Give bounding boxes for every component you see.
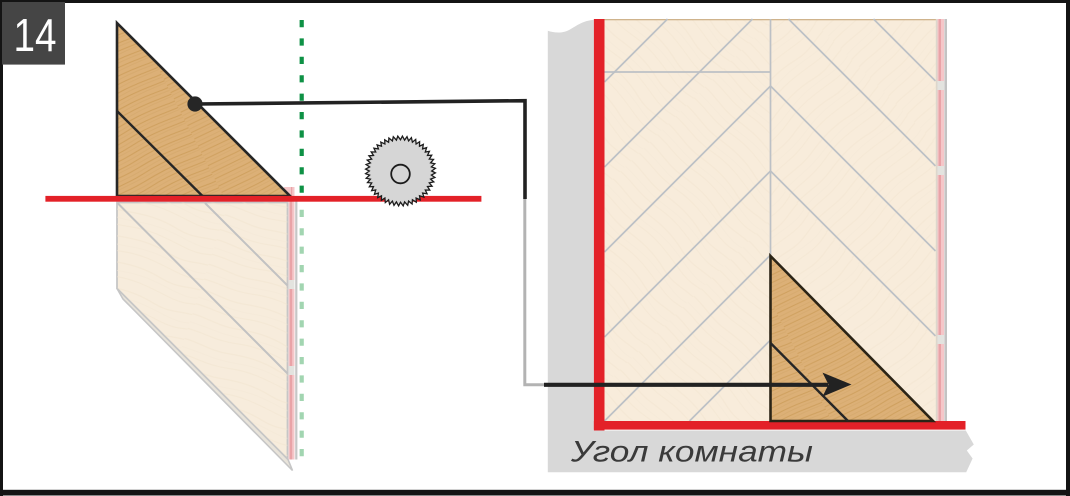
svg-text:14: 14 — [14, 9, 57, 61]
svg-text:Угол комнаты: Угол комнаты — [570, 436, 814, 469]
